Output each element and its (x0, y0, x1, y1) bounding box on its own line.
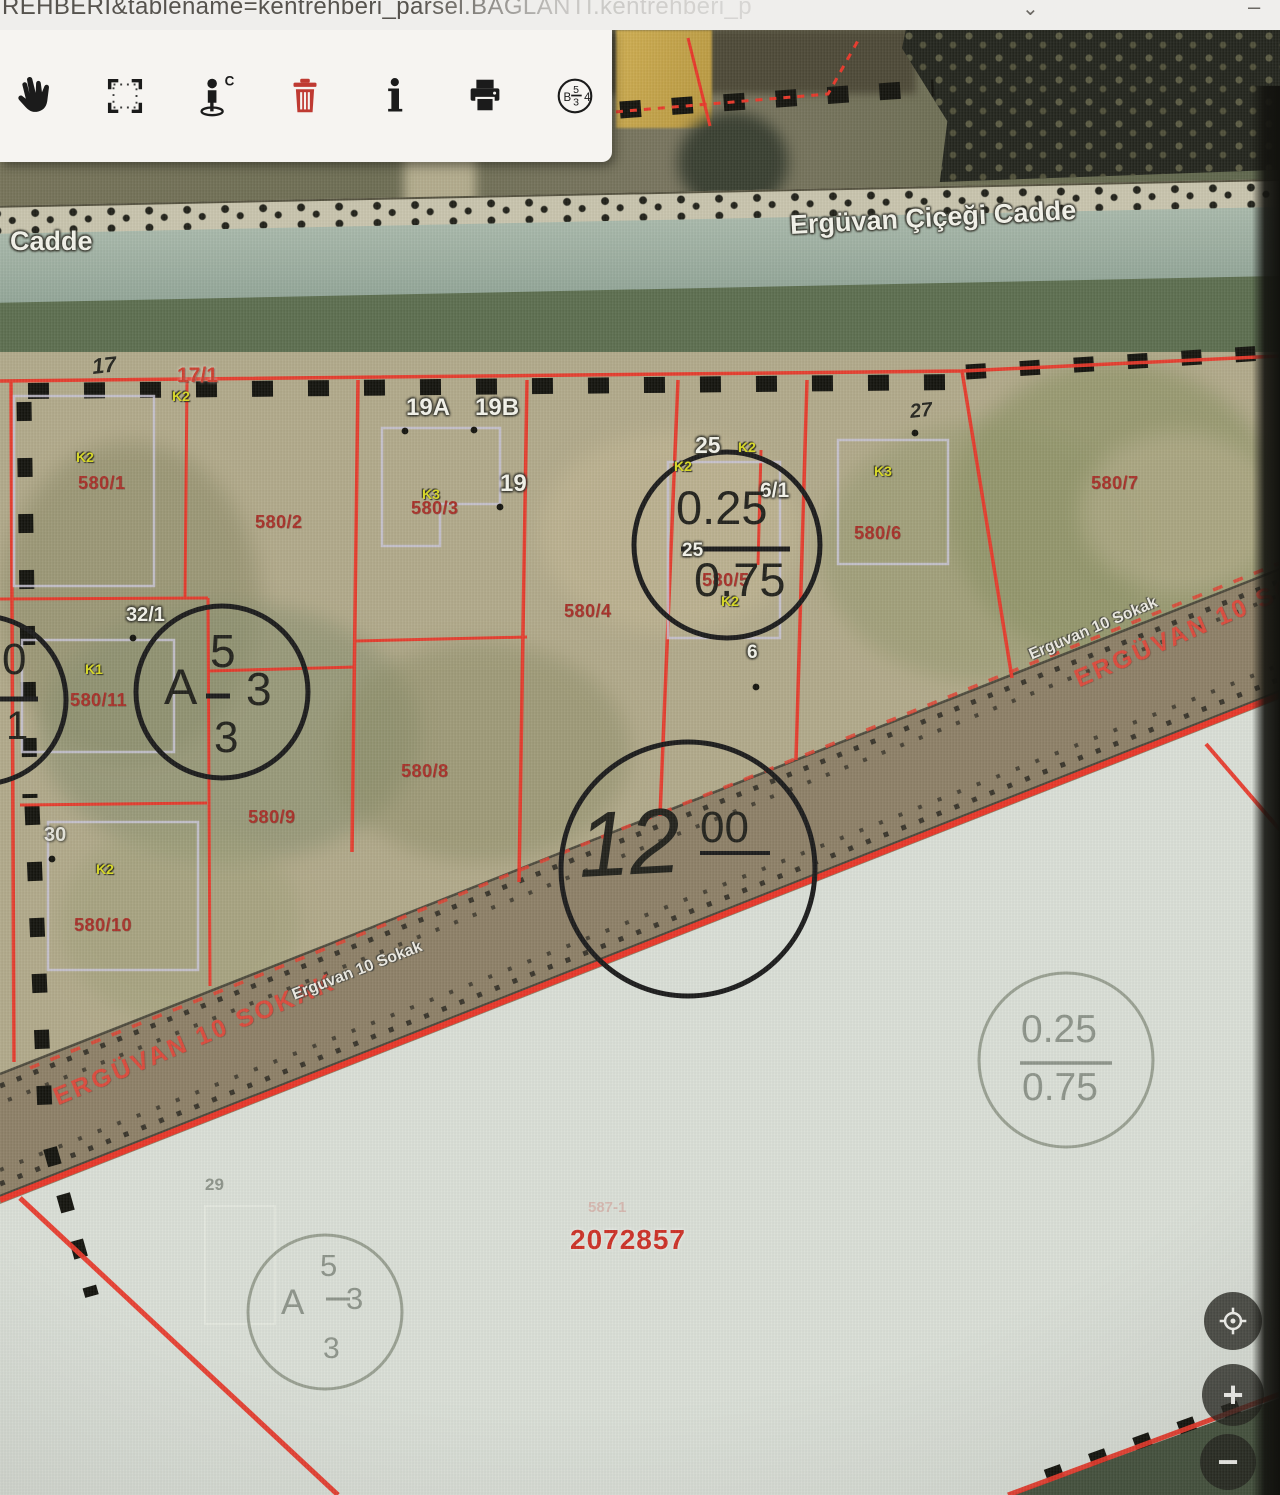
zoning-annotation: A (281, 1285, 304, 1320)
parcel-number-label: 580/3 (411, 499, 459, 517)
parcel-number-label: 580/8 (401, 762, 449, 780)
zoning-annotation: A (164, 662, 197, 712)
pan-hand-button[interactable] (10, 71, 60, 121)
select-area-button[interactable] (100, 71, 150, 121)
house-number-label: 30 (44, 825, 66, 845)
chevron-down-icon[interactable]: ⌄ (1022, 0, 1039, 21)
parcel-number-label: 580/6 (854, 524, 902, 542)
badge-numerator: 5 (573, 84, 579, 96)
zoning-badge-icon: B 5 3 4 (552, 73, 598, 119)
house-number-label: 19 (500, 472, 527, 496)
house-number-label: 32/1 (126, 605, 165, 625)
parcel-number-label: 580/7 (1091, 474, 1139, 492)
zoning-annotation: 3 (323, 1334, 340, 1364)
zoning-code-label: K1 (85, 662, 103, 676)
parcel-number-label: 580/10 (74, 916, 132, 934)
house-number-label: 27 (909, 400, 933, 422)
hand-pointer-icon (12, 73, 58, 119)
browser-url-bar[interactable]: REHBERI&tablename=kentrehberi_parsel.BAG… (0, 0, 1280, 30)
street-view-person-icon: C (192, 73, 238, 119)
house-number-label: 17/1 (177, 365, 218, 386)
zoning-annotation: 3 (246, 666, 272, 712)
parcel-number-label: 580/1 (78, 474, 126, 492)
info-icon: i (372, 73, 418, 119)
badge-denominator: 3 (573, 97, 579, 109)
zoning-ratio-annotation: 1 (6, 706, 28, 746)
road-width-annotation: 00 (700, 806, 749, 850)
parcel-number-label: 580/2 (255, 513, 303, 531)
printer-icon (462, 73, 508, 119)
map-label-layer: CaddeErgüvan Çiçeği Cadde1717/1K2K2580/1… (0, 0, 1280, 1495)
url-text: REHBERI&tablename=kentrehberi_parsel.BAG… (2, 0, 752, 21)
faint-parcel-label: 587-1 (588, 1200, 626, 1215)
zoning-code-label: K2 (76, 450, 94, 464)
screen: CaddeErgüvan Çiçeği Cadde1717/1K2K2580/1… (0, 0, 1280, 1495)
window-dash-icon[interactable]: – (1248, 0, 1260, 20)
badge-right: 4 (584, 92, 591, 104)
map-toolbar: C i (0, 30, 612, 162)
parcel-number-label: 580/4 (564, 602, 612, 620)
svg-text:i: i (387, 73, 404, 119)
parcel-number-label: 580/9 (248, 808, 296, 826)
crosshair-icon (1213, 1301, 1253, 1341)
zoning-ratio-annotation: 0.75 (1022, 1068, 1098, 1107)
zoning-annotation: 5 (210, 628, 236, 674)
house-number-label: 29 (205, 1176, 224, 1193)
zoning-code-label: K2 (172, 389, 190, 403)
zoning-annotation: 3 (214, 716, 238, 760)
street-label: Ergüvan Çiçeği Cadde (789, 197, 1077, 239)
map-viewport[interactable]: CaddeErgüvan Çiçeği Cadde1717/1K2K2580/1… (0, 0, 1280, 1495)
zoom-out-label: − (1217, 1441, 1238, 1483)
zoning-code-label: K2 (674, 459, 692, 473)
street-label: Cadde (10, 228, 93, 255)
parcel-id-label: 2072857 (570, 1226, 686, 1254)
selection-box-icon (102, 73, 148, 119)
house-number-label: 19B (475, 396, 519, 420)
info-button[interactable]: i (370, 71, 420, 121)
road-width-annotation: 12 (576, 795, 683, 892)
house-number-label: 17 (91, 354, 118, 378)
trash-icon (282, 73, 328, 119)
zoning-badge-button[interactable]: B 5 3 4 (550, 71, 600, 121)
zoning-code-label: K2 (96, 862, 114, 876)
print-button[interactable] (460, 71, 510, 121)
zoning-code-label: K3 (874, 464, 892, 478)
parcel-number-label: 580/11 (70, 691, 127, 709)
zoning-ratio-annotation: 0.75 (694, 556, 785, 603)
zoning-ratio-annotation: 0.25 (676, 484, 767, 531)
zoom-in-button[interactable]: + (1202, 1364, 1264, 1426)
house-number-label: 19A (406, 396, 450, 420)
zoning-ratio-annotation: 0.25 (1021, 1010, 1097, 1049)
street-view-button[interactable]: C (190, 71, 240, 121)
zoom-out-button[interactable]: − (1200, 1434, 1256, 1490)
delete-button[interactable] (280, 71, 330, 121)
locate-button[interactable] (1204, 1292, 1262, 1350)
zoning-code-label: K2 (738, 440, 756, 454)
zoom-in-label: + (1222, 1374, 1243, 1416)
house-number-label: 25 (695, 434, 721, 457)
zoning-annotation: 3 (346, 1283, 363, 1314)
house-number-label: 6 (747, 643, 758, 662)
street-label: Erguvan 10 Sokak (290, 939, 424, 1003)
zoning-ratio-annotation: 0 (2, 638, 26, 682)
zoning-annotation: 5 (320, 1250, 337, 1281)
badge-left: B (564, 92, 572, 104)
svg-text:C: C (225, 73, 235, 88)
